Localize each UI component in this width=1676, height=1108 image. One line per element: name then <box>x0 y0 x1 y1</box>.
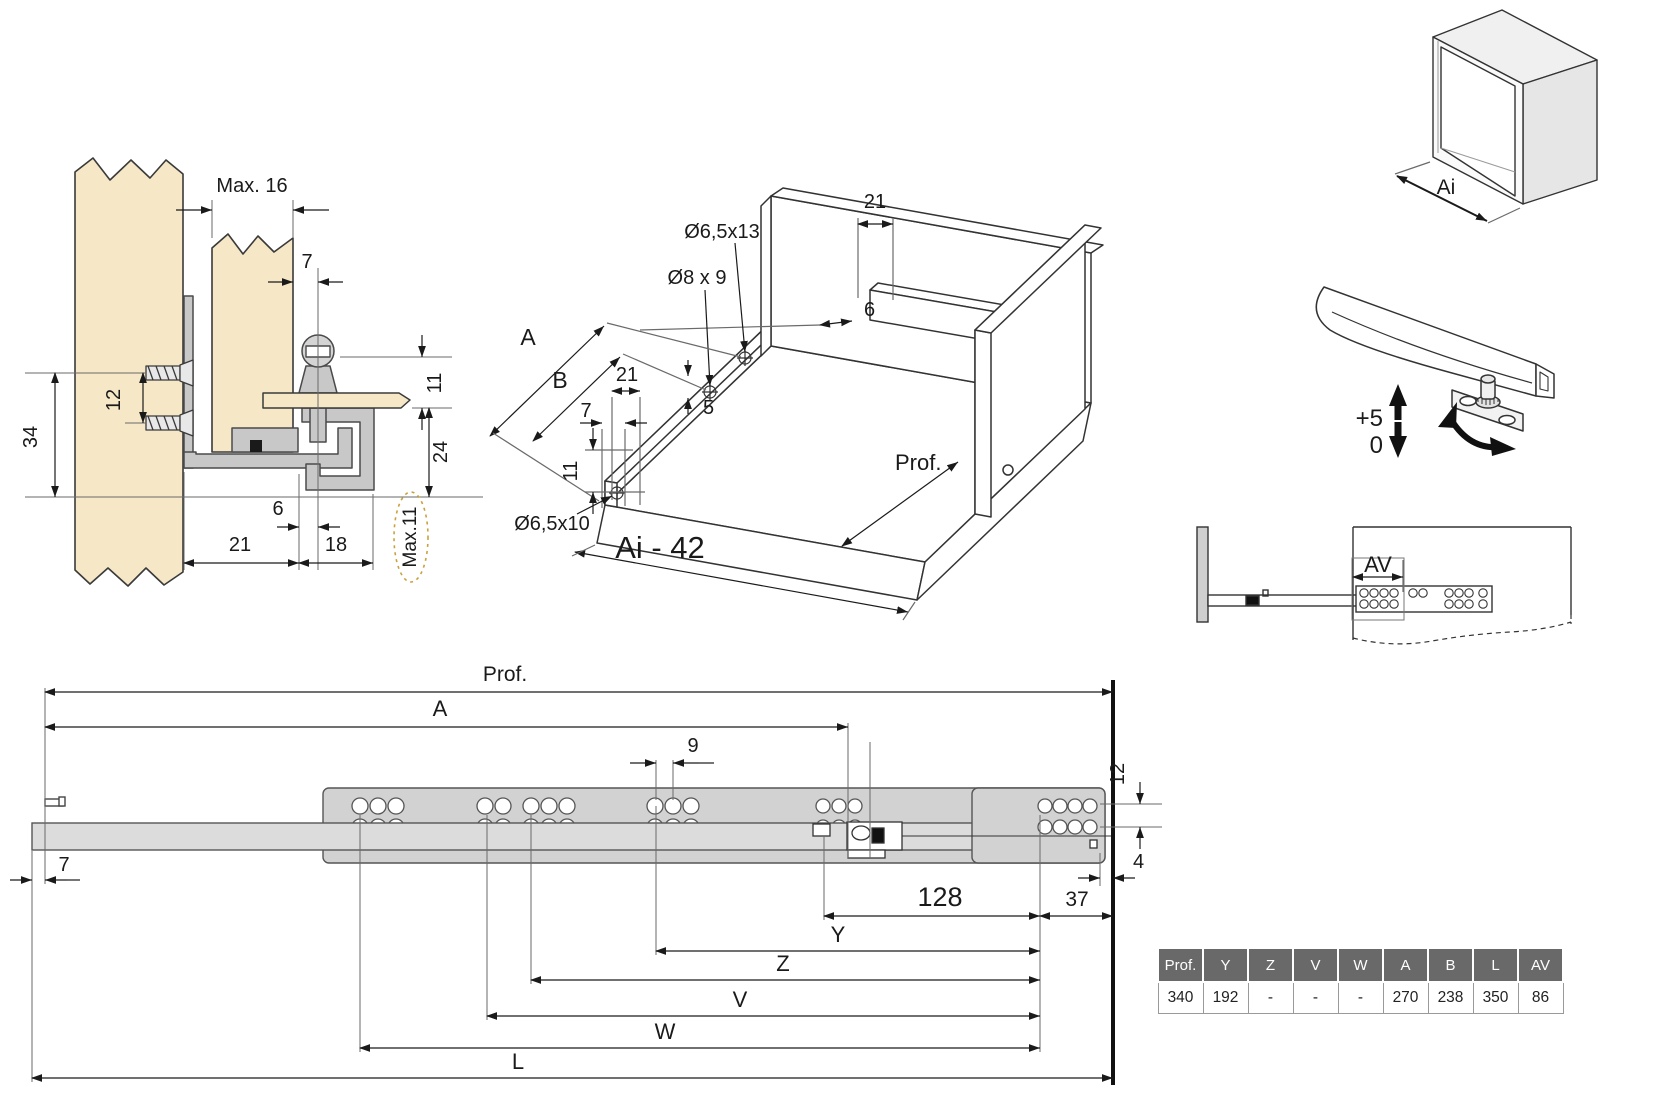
drawer-isometric-view: 21 6 Ø6,5x13 Ø8 x 9 A B 21 7 5 11 Ø6,5x1… <box>490 188 1103 620</box>
dim-18: 18 <box>325 534 347 556</box>
dim-5: 5 <box>703 397 714 419</box>
dim-128: 128 <box>917 882 962 912</box>
val-av: 86 <box>1518 982 1563 1014</box>
col-z: Z <box>1248 948 1293 982</box>
col-y: Y <box>1203 948 1248 982</box>
drawer-bottom-edge <box>263 393 410 408</box>
val-v: - <box>1293 982 1338 1014</box>
dim-9: 9 <box>687 735 698 757</box>
callout-hole-65x13: Ø6,5x13 <box>684 221 760 243</box>
dim-Z: Z <box>776 951 789 976</box>
dim-V: V <box>733 987 748 1012</box>
dim-prof-iso: Prof. <box>895 450 941 475</box>
spec-table-value-row: 340 192 - - - 270 238 350 86 <box>1158 982 1563 1014</box>
dim-21: 21 <box>229 534 251 556</box>
dim-Y: Y <box>831 922 846 947</box>
adjust-texts: +5 0 <box>1356 405 1383 459</box>
dim-Ai: Ai <box>1437 176 1456 199</box>
dim-A: A <box>520 324 536 350</box>
col-l: L <box>1473 948 1518 982</box>
rail-dimension-texts: Prof. A 9 12 7 4 128 37 Y Z V W L <box>58 663 1144 1074</box>
label-zero: 0 <box>1370 432 1383 459</box>
val-l: 350 <box>1473 982 1518 1014</box>
val-w: - <box>1338 982 1383 1014</box>
extension-view: AV <box>1197 527 1571 644</box>
dim-37: 37 <box>1065 888 1088 911</box>
val-y: 192 <box>1203 982 1248 1014</box>
col-b: B <box>1428 948 1473 982</box>
dim-ai-42: Ai - 42 <box>615 530 705 565</box>
dim-7-front: 7 <box>580 400 591 422</box>
callout-hole-65x10: Ø6,5x10 <box>514 513 590 535</box>
rail-dimension-lines <box>10 692 1140 1078</box>
dim-24: 24 <box>430 441 452 463</box>
spec-table-header-row: Prof. Y Z V W A B L AV <box>1158 948 1563 982</box>
dim-21-rear: 21 <box>864 191 886 213</box>
val-z: - <box>1248 982 1293 1014</box>
dim-4: 4 <box>1133 851 1144 873</box>
dim-AV: AV <box>1364 552 1392 577</box>
val-b: 238 <box>1428 982 1473 1014</box>
dim-7-rail: 7 <box>58 854 69 876</box>
cross-section-view: Max. 16 7 34 12 11 24 6 21 18 Max.11 <box>20 158 483 586</box>
dim-12-rail: 12 <box>1107 763 1129 785</box>
dim-B: B <box>552 367 567 393</box>
dim-max11: Max.11 <box>400 507 421 568</box>
drawing-canvas: Max. 16 7 34 12 11 24 6 21 18 Max.11 <box>0 0 1676 1108</box>
rail-reference-lines <box>32 688 1162 1082</box>
lock-pin <box>250 440 262 452</box>
height-adjustment-view: +5 0 <box>1316 287 1554 459</box>
callout-hole-8x9: Ø8 x 9 <box>668 267 727 289</box>
cabinet-box-view: Ai <box>1395 10 1597 223</box>
dim-6-gap: 6 <box>864 299 875 321</box>
dim-12: 12 <box>103 389 125 411</box>
dim-max16: Max. 16 <box>216 175 287 197</box>
dim-W: W <box>655 1019 676 1044</box>
dim-6: 6 <box>272 498 283 520</box>
vertical-adjust-arrows <box>1389 384 1407 458</box>
dim-L: L <box>512 1049 524 1074</box>
dim-prof-rail: Prof. <box>483 663 527 686</box>
dim-21-front: 21 <box>616 364 638 386</box>
dim-34: 34 <box>20 426 42 448</box>
col-a: A <box>1383 948 1428 982</box>
col-v: V <box>1293 948 1338 982</box>
dim-7: 7 <box>301 251 312 273</box>
dim-11: 11 <box>424 373 446 394</box>
val-a: 270 <box>1383 982 1428 1014</box>
col-w: W <box>1338 948 1383 982</box>
val-prof: 340 <box>1158 982 1203 1014</box>
rail-side-view: Prof. A 9 12 7 4 128 37 Y Z V W L <box>10 663 1162 1085</box>
technical-drawing-page: Max. 16 7 34 12 11 24 6 21 18 Max.11 <box>0 0 1676 1108</box>
front-hook <box>45 797 65 806</box>
label-plus5: +5 <box>1356 405 1383 432</box>
dim-A-rail: A <box>433 696 448 721</box>
col-av: AV <box>1518 948 1563 982</box>
col-prof: Prof. <box>1158 948 1203 982</box>
spec-table: Prof. Y Z V W A B L AV 340 192 - - - 270… <box>1157 947 1564 1014</box>
dim-11-front: 11 <box>560 461 582 482</box>
